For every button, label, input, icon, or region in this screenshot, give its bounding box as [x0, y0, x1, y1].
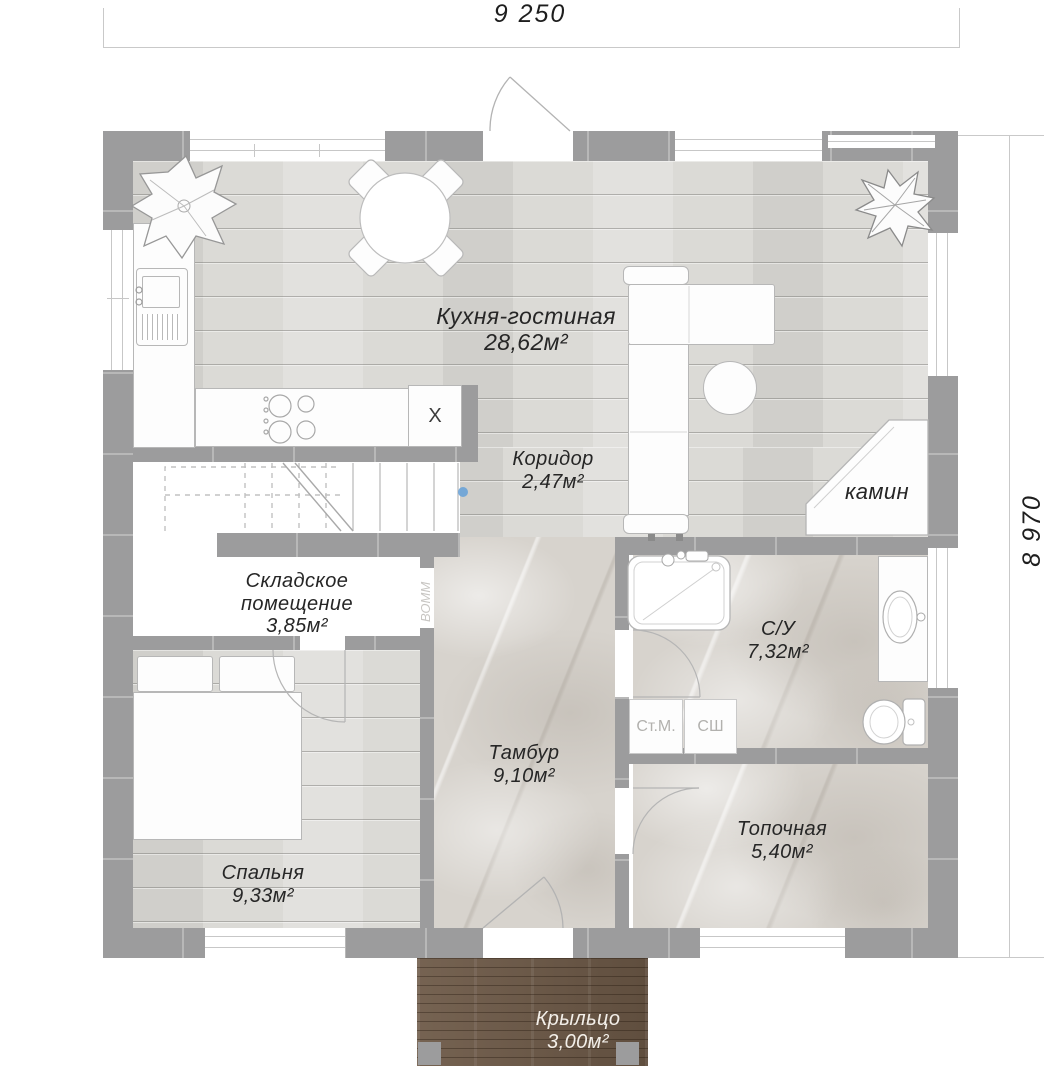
window-pane-line	[675, 150, 822, 151]
door-opening-bathroom	[615, 630, 629, 697]
window-pane-line	[947, 233, 948, 376]
room-label-porch: Крыльцо 3,00м²	[498, 1008, 658, 1053]
room-label-storage: Складское помещение 3,85м²	[217, 570, 377, 638]
coffee-table	[703, 361, 757, 415]
dimension-top: 9 250	[380, 0, 680, 29]
door-opening-entrance	[483, 928, 573, 958]
sofa-armrest	[623, 514, 689, 534]
window-pane-line	[936, 233, 937, 376]
door-opening-boiler	[615, 788, 629, 854]
washing-machine-label: Ст.М.	[636, 718, 675, 736]
dimension-ext-line	[959, 8, 960, 47]
room-name: Складское помещение	[217, 570, 377, 615]
dimension-top-line	[103, 47, 960, 48]
window-pane-line	[107, 298, 129, 299]
window-pane-line	[205, 936, 345, 937]
fireplace-label: камин	[807, 480, 947, 505]
room-name: Тамбур	[444, 742, 604, 765]
room-area: 3,85м²	[217, 615, 377, 638]
washing-machine: Ст.М.	[629, 699, 683, 754]
window-pane-line	[111, 230, 112, 370]
window-pane-line	[936, 548, 937, 688]
floor-tambour	[433, 537, 616, 928]
window	[928, 233, 958, 376]
wall-segment	[615, 537, 629, 928]
room-name: Крыльцо	[498, 1008, 658, 1031]
room-area: 9,10м²	[444, 765, 604, 788]
room-label-bedroom: Спальня 9,33м²	[183, 862, 343, 907]
bed-pillow	[219, 656, 295, 692]
closet-door-track	[676, 534, 683, 541]
window-pane-line	[319, 144, 320, 157]
wall-segment	[615, 537, 928, 555]
window	[828, 135, 935, 148]
window-pane-line	[205, 947, 345, 948]
room-area: 7,32м²	[698, 641, 858, 664]
bed	[133, 692, 302, 840]
fridge-mark: X	[428, 405, 441, 428]
dimension-ext-line	[958, 957, 1044, 958]
door-opening-main-top	[483, 131, 573, 161]
room-label-kitchen-living: Кухня-гостиная 28,62м²	[406, 303, 646, 355]
room-area: 28,62м²	[406, 329, 646, 355]
room-label-boiler: Топочная 5,40м²	[702, 818, 862, 863]
window	[103, 230, 133, 370]
kitchen-sink-basin	[142, 276, 180, 308]
window	[928, 548, 958, 688]
window	[190, 131, 385, 161]
window	[675, 131, 822, 161]
sofa-armrest	[623, 266, 689, 285]
porch-column	[418, 1042, 441, 1065]
bathroom-vanity	[878, 556, 928, 682]
dryer-cabinet-label: СШ	[697, 718, 723, 736]
room-area: 5,40м²	[702, 841, 862, 864]
room-label-corridor: Коридор 2,47м²	[473, 448, 633, 493]
floor-stairs	[133, 462, 460, 533]
window-pane-line	[675, 139, 822, 140]
dimension-ext-line	[958, 135, 1044, 136]
room-name: С/У	[698, 618, 858, 641]
wall-segment	[217, 533, 460, 557]
room-name: Кухня-гостиная	[406, 303, 646, 329]
dimension-ext-line	[103, 8, 104, 47]
dryer-cabinet: СШ	[684, 699, 737, 754]
window-pane-line	[700, 947, 845, 948]
door-opening-bedroom	[300, 636, 345, 650]
closet-door-track	[648, 534, 655, 541]
room-name: Спальня	[183, 862, 343, 885]
window-pane-line	[190, 139, 385, 140]
door-opening-storage	[420, 568, 434, 628]
window-pane-line	[254, 144, 255, 157]
window-pane-line	[190, 150, 385, 151]
window-pane-line	[700, 936, 845, 937]
sofa-seat-vertical	[628, 344, 689, 516]
window-pane-line	[828, 141, 935, 142]
wall-segment	[133, 447, 478, 462]
window-pane-line	[947, 548, 948, 688]
sofa-seat-horizontal	[628, 284, 775, 345]
room-area: 2,47м²	[473, 471, 633, 494]
room-name: Коридор	[473, 448, 633, 471]
window-pane-line	[122, 230, 123, 370]
room-label-bathroom: С/У 7,32м²	[698, 618, 858, 663]
door-swing-top	[490, 77, 570, 131]
floor-plan: 9 250 8 970	[0, 0, 1057, 1080]
window	[205, 928, 345, 958]
window	[700, 928, 845, 958]
room-area: 3,00м²	[498, 1031, 658, 1054]
dimension-right-line	[1009, 135, 1010, 957]
fridge: X	[408, 385, 462, 447]
room-name: Топочная	[702, 818, 862, 841]
room-label-tambour: Тамбур 9,10м²	[444, 742, 604, 787]
room-area: 9,33м²	[183, 885, 343, 908]
bed-pillow	[137, 656, 213, 692]
dimension-right: 8 970	[1018, 463, 1047, 598]
kitchen-sink-drainer	[142, 314, 180, 340]
wall-segment	[133, 636, 434, 650]
